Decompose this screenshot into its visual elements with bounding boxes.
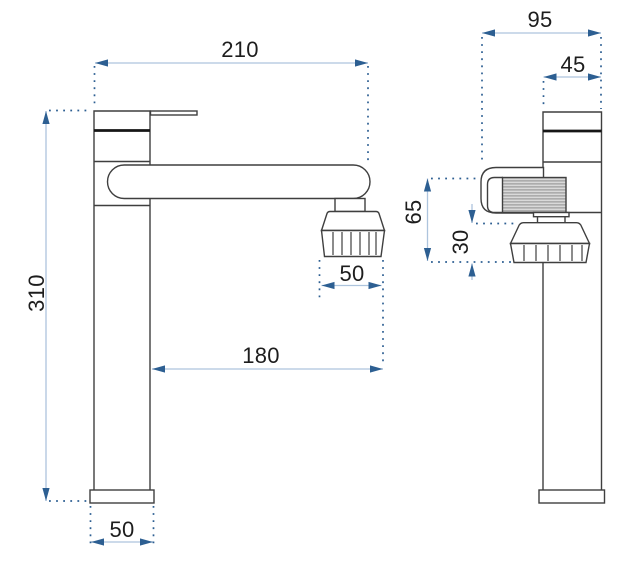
dim-label-45: 45 [560,52,585,77]
dim-label-30: 30 [448,229,473,254]
dim-label-210: 210 [221,37,259,62]
dim-label-310: 310 [24,274,49,312]
aerator-neck-front [335,199,365,212]
dim-label-95: 95 [527,7,552,32]
base-flange-side [539,490,605,503]
knurled-aerator-cap-side [503,178,567,213]
side-view [481,112,605,503]
aerator-neck-side [538,217,566,223]
dim-label-180: 180 [242,343,280,368]
dim-label-65: 65 [401,199,426,224]
front-view [90,111,385,503]
technical-drawing-canvas: 210 310 50 180 50 95 45 65 [0,0,643,567]
aerator-ribbed-front [322,231,385,257]
aerator-ribbed-side [511,244,590,263]
faucet-drawing: 210 310 50 180 50 95 45 65 [0,0,643,567]
dim-label-50-aerator: 50 [339,261,364,286]
handle-lever [151,111,198,115]
aerator-housing-front [322,212,385,231]
spout-front [108,165,371,199]
dim-label-50-base: 50 [109,517,134,542]
faucet-body-side [543,112,602,490]
base-flange-front [90,490,154,503]
aerator-housing-side [511,223,590,244]
